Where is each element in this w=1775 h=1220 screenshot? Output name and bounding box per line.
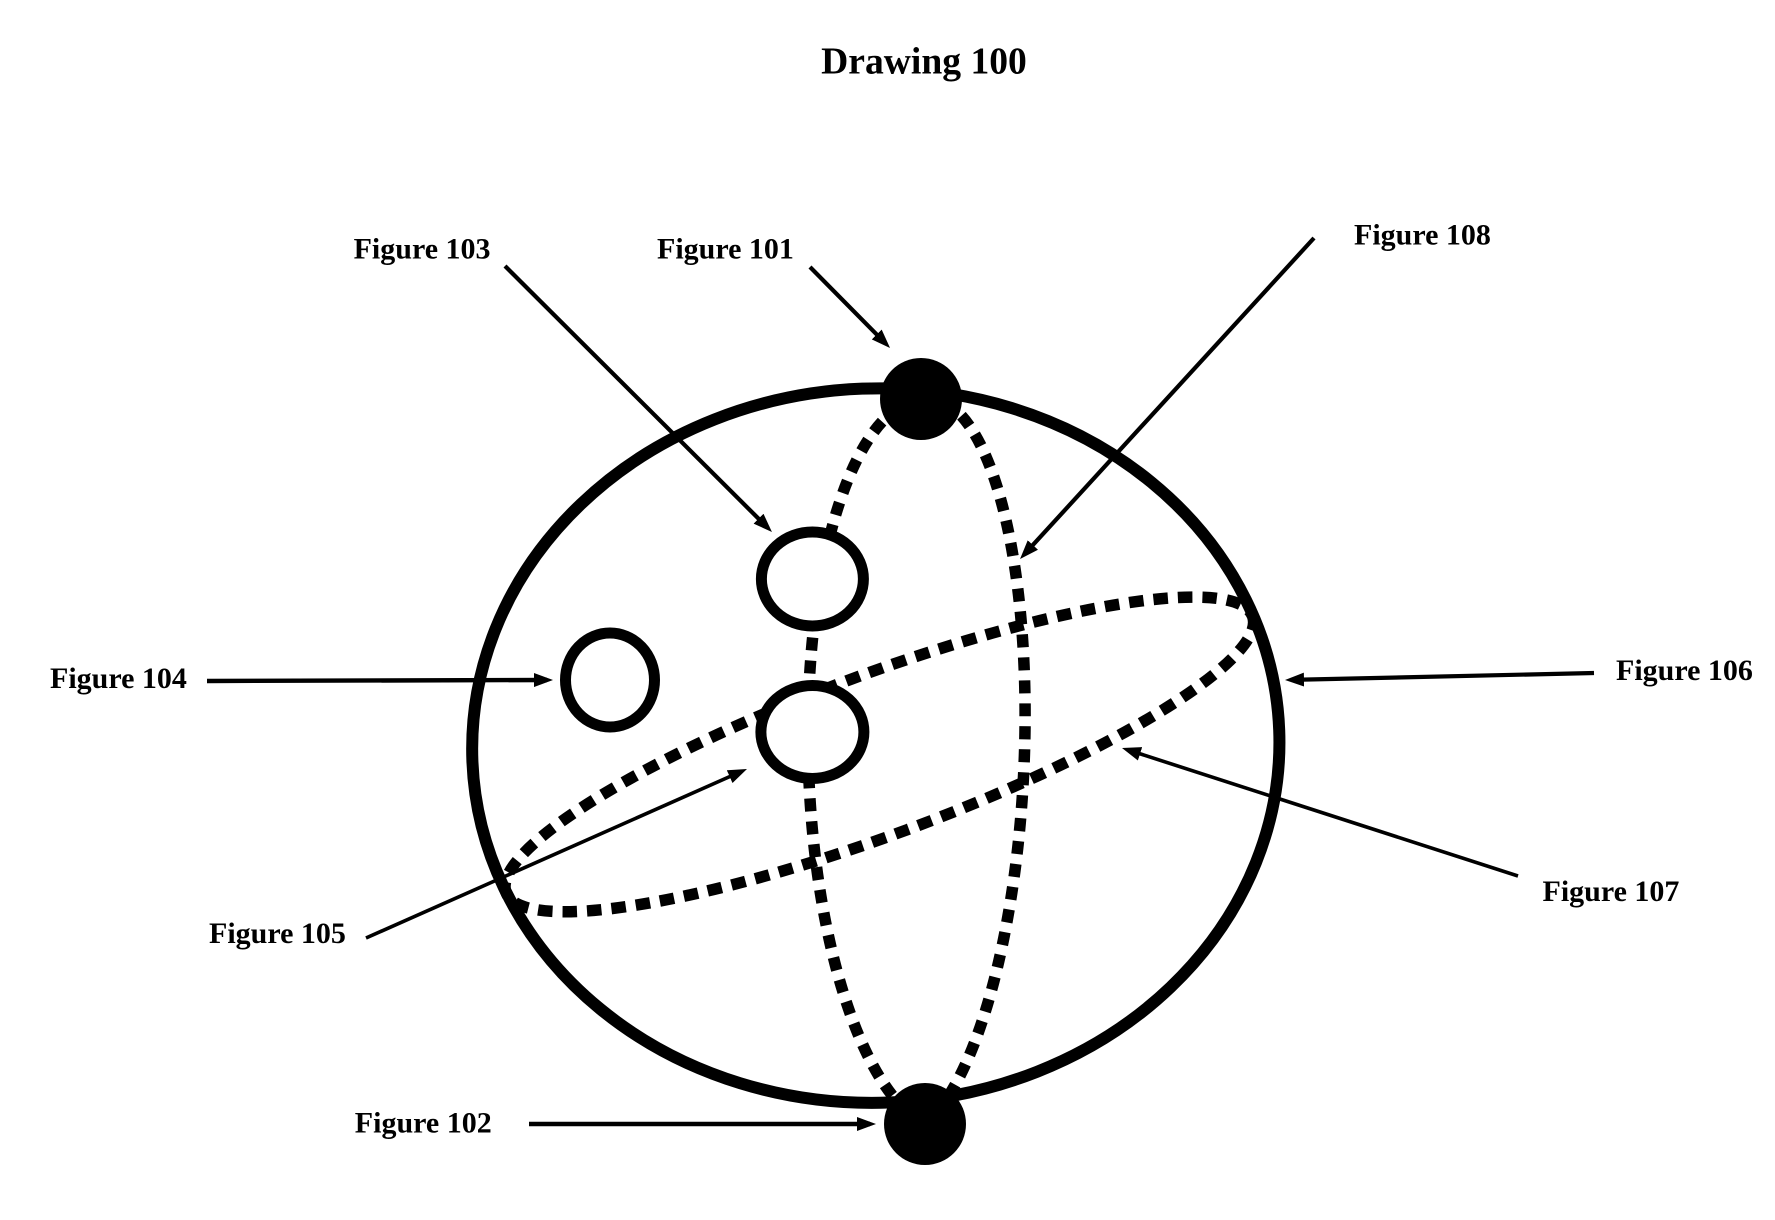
svg-text:Figure 106: Figure 106 [1616,654,1753,687]
svg-text:Figure 108: Figure 108 [1354,219,1491,252]
svg-text:Figure 101: Figure 101 [657,232,794,265]
svg-text:Figure 107: Figure 107 [1543,875,1680,908]
svg-text:Drawing 100: Drawing 100 [821,42,1027,83]
svg-text:Figure 105: Figure 105 [209,917,346,950]
svg-text:Figure 103: Figure 103 [354,232,491,265]
svg-text:Figure 104: Figure 104 [50,662,187,695]
svg-text:Figure 102: Figure 102 [355,1107,492,1140]
